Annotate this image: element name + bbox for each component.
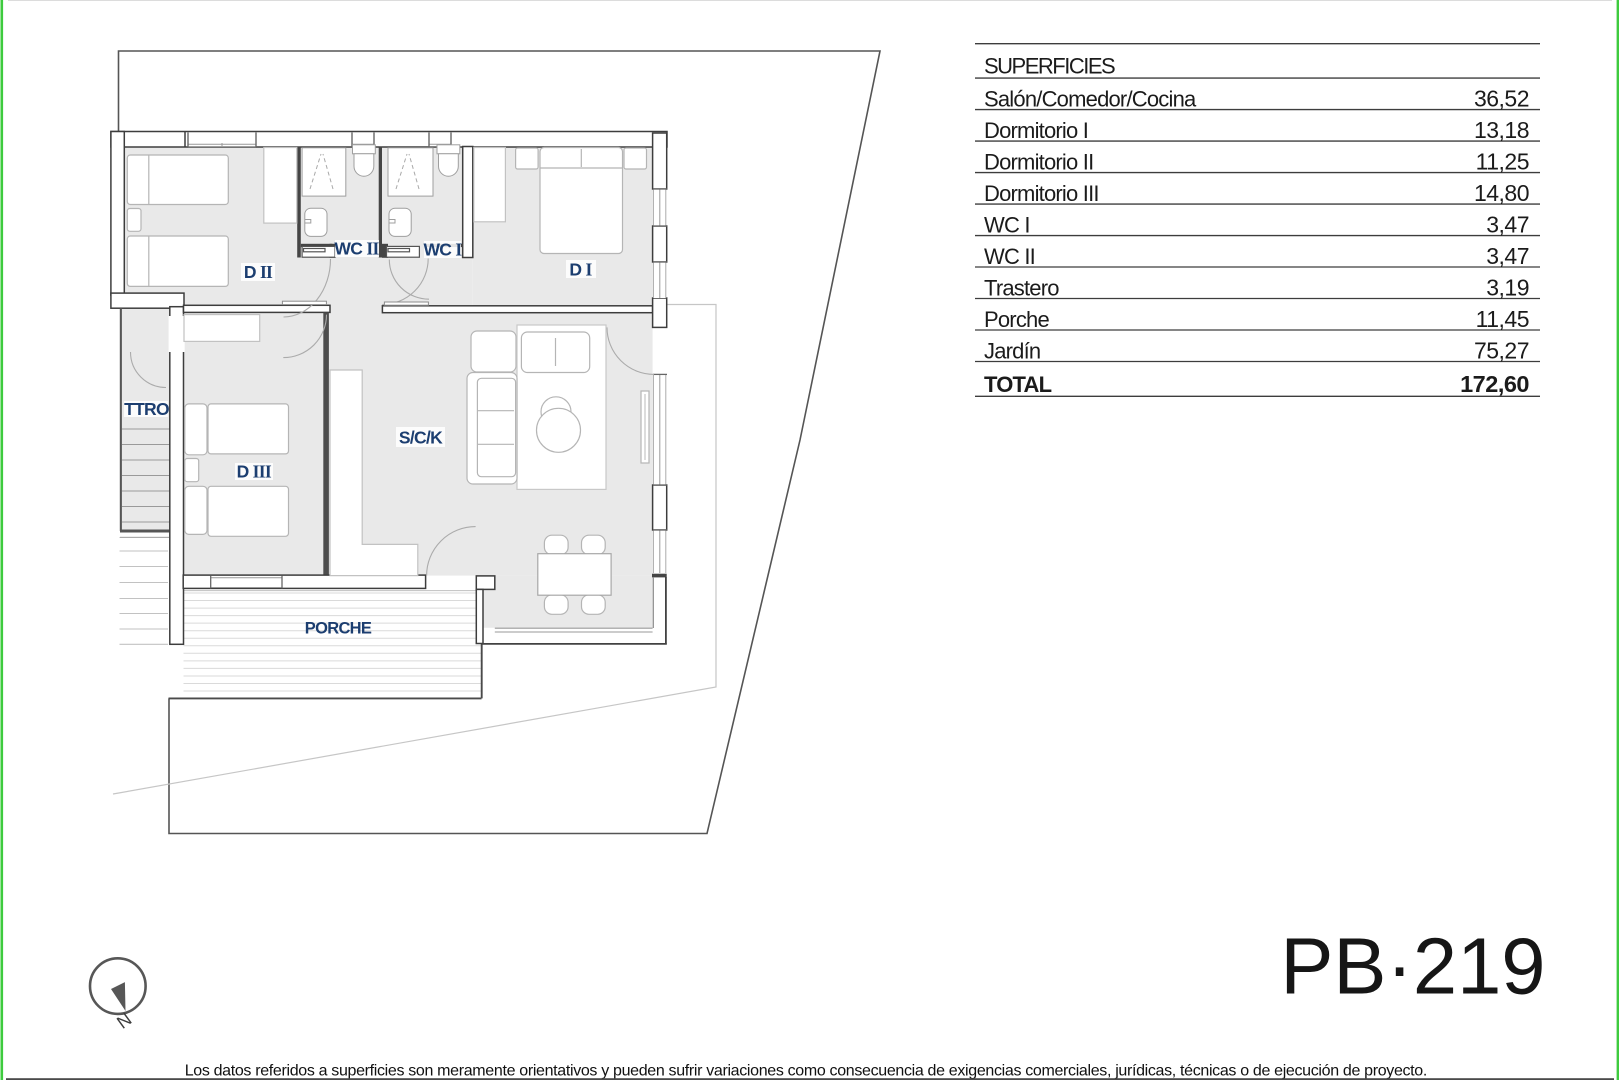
svg-text:11,25: 11,25 — [1476, 149, 1529, 175]
svg-text:3,19: 3,19 — [1486, 275, 1529, 301]
svg-text:D II: D II — [244, 262, 273, 282]
svg-text:13,18: 13,18 — [1474, 117, 1529, 143]
svg-text:D I: D I — [569, 260, 592, 280]
svg-text:36,52: 36,52 — [1474, 86, 1529, 112]
svg-text:WC I: WC I — [423, 240, 462, 260]
svg-text:172,60: 172,60 — [1460, 371, 1529, 397]
svg-text:S/C/K: S/C/K — [399, 428, 443, 448]
svg-text:3,47: 3,47 — [1486, 212, 1529, 238]
svg-text:Dormitorio II: Dormitorio II — [984, 150, 1093, 175]
svg-text:TOTAL: TOTAL — [984, 372, 1052, 397]
svg-text:75,27: 75,27 — [1474, 338, 1529, 364]
svg-text:Salón/Comedor/Cocina: Salón/Comedor/Cocina — [984, 87, 1197, 112]
svg-text:Porche: Porche — [984, 307, 1049, 332]
svg-text:3,47: 3,47 — [1486, 243, 1529, 269]
svg-text:D III: D III — [237, 462, 272, 482]
svg-text:Trastero: Trastero — [984, 276, 1059, 301]
svg-text:Los datos referidos a superfic: Los datos referidos a superficies son me… — [185, 1063, 1427, 1080]
svg-text:WC II: WC II — [984, 244, 1035, 269]
svg-text:WC II: WC II — [334, 239, 379, 259]
svg-text:TTRO: TTRO — [124, 399, 169, 419]
svg-text:Jardín: Jardín — [984, 339, 1040, 364]
svg-text:PORCHE: PORCHE — [305, 620, 372, 638]
svg-text:SUPERFICIES: SUPERFICIES — [984, 54, 1115, 79]
svg-text:14,80: 14,80 — [1474, 180, 1529, 206]
svg-text:Dormitorio III: Dormitorio III — [984, 181, 1099, 206]
svg-text:PB·219: PB·219 — [1280, 922, 1545, 1011]
svg-text:11,45: 11,45 — [1476, 306, 1529, 332]
svg-text:Dormitorio I: Dormitorio I — [984, 118, 1088, 143]
svg-text:WC I: WC I — [984, 213, 1030, 238]
